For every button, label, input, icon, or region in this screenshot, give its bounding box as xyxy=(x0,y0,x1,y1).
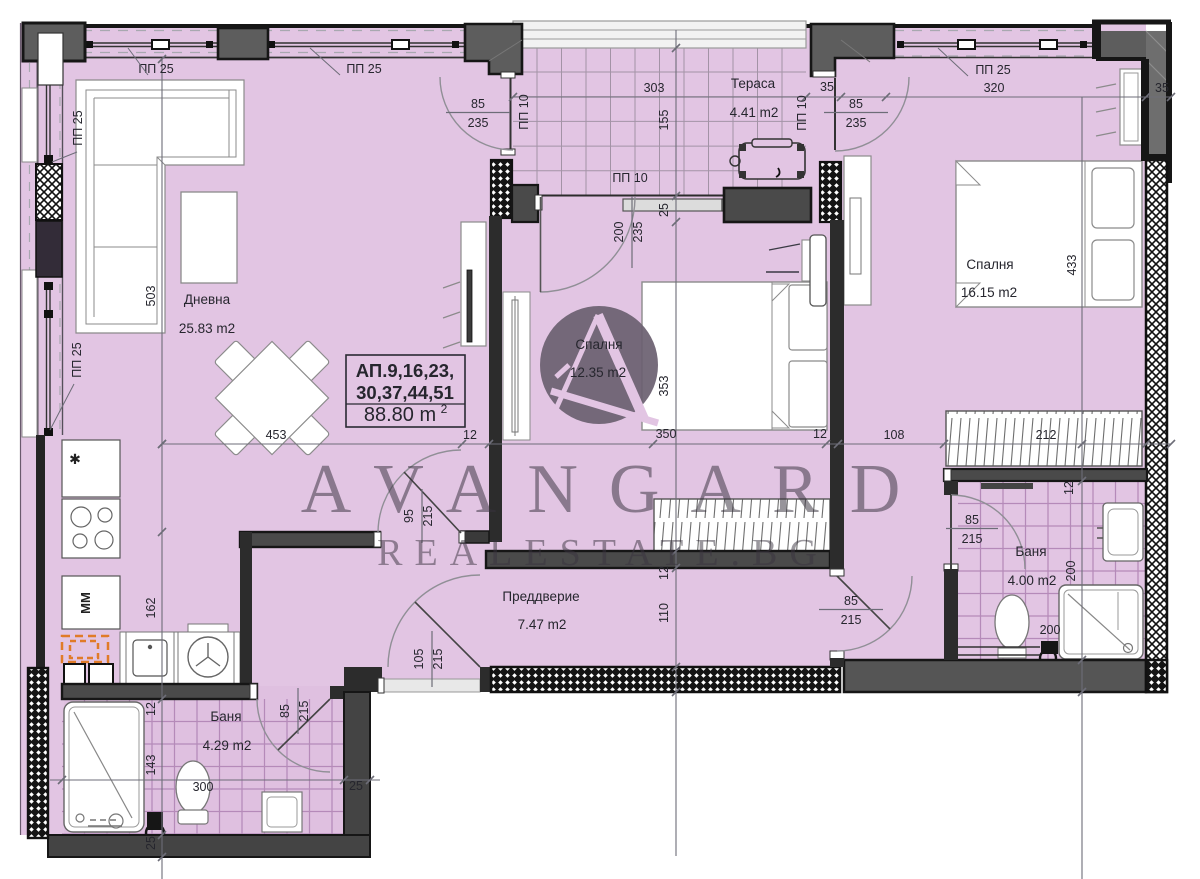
svg-text:Баня: Баня xyxy=(210,709,241,724)
svg-text:30,37,44,51: 30,37,44,51 xyxy=(356,382,454,403)
svg-text:Преддверие: Преддверие xyxy=(502,589,579,604)
svg-text:453: 453 xyxy=(266,428,287,442)
svg-text:Дневна: Дневна xyxy=(184,292,231,307)
svg-text:Спалня: Спалня xyxy=(966,257,1013,272)
svg-text:ПП 10: ПП 10 xyxy=(517,94,531,129)
svg-text:12.35 m2: 12.35 m2 xyxy=(570,365,626,380)
svg-text:ПП 25: ПП 25 xyxy=(71,110,85,145)
svg-text:12: 12 xyxy=(813,427,827,441)
svg-text:✱: ✱ xyxy=(69,451,81,467)
svg-text:303: 303 xyxy=(644,81,665,95)
svg-text:2: 2 xyxy=(441,402,448,416)
svg-text:85: 85 xyxy=(965,513,979,527)
svg-text:353: 353 xyxy=(657,376,671,397)
svg-text:85: 85 xyxy=(849,97,863,111)
svg-text:ПП 25: ПП 25 xyxy=(346,62,381,76)
svg-text:350: 350 xyxy=(656,427,677,441)
svg-text:212: 212 xyxy=(1036,428,1057,442)
svg-text:235: 235 xyxy=(846,116,867,130)
svg-text:16.15 m2: 16.15 m2 xyxy=(961,285,1017,300)
svg-text:85: 85 xyxy=(471,97,485,111)
svg-text:ММ: ММ xyxy=(78,592,93,614)
svg-text:110: 110 xyxy=(657,603,671,623)
svg-text:4.00 m2: 4.00 m2 xyxy=(1008,573,1057,588)
svg-text:162: 162 xyxy=(144,598,158,619)
svg-text:85: 85 xyxy=(844,594,858,608)
svg-text:7.47 m2: 7.47 m2 xyxy=(518,617,567,632)
svg-text:235: 235 xyxy=(631,222,645,243)
svg-text:155: 155 xyxy=(657,110,671,131)
svg-text:503: 503 xyxy=(144,286,158,307)
svg-text:433: 433 xyxy=(1065,255,1079,276)
svg-text:85: 85 xyxy=(278,704,292,718)
svg-text:25: 25 xyxy=(144,836,158,850)
svg-text:Тераса: Тераса xyxy=(731,76,776,91)
svg-text:320: 320 xyxy=(984,81,1005,95)
svg-text:200: 200 xyxy=(1040,623,1061,637)
svg-text:25: 25 xyxy=(657,203,671,217)
svg-text:35: 35 xyxy=(1155,81,1169,95)
svg-text:4.41 m2: 4.41 m2 xyxy=(730,105,779,120)
svg-text:215: 215 xyxy=(431,649,445,670)
svg-text:105: 105 xyxy=(412,649,426,670)
svg-text:25.83 m2: 25.83 m2 xyxy=(179,321,235,336)
svg-text:215: 215 xyxy=(841,613,862,627)
svg-text:ПП 10: ПП 10 xyxy=(795,95,809,130)
svg-text:88.80 m: 88.80 m xyxy=(364,404,436,426)
svg-text:4.29 m2: 4.29 m2 xyxy=(203,738,252,753)
svg-text:200: 200 xyxy=(612,222,626,243)
svg-text:300: 300 xyxy=(193,780,214,794)
svg-text:25: 25 xyxy=(349,779,363,793)
svg-text:ПП 25: ПП 25 xyxy=(975,63,1010,77)
svg-text:12: 12 xyxy=(463,428,477,442)
svg-text:Спалня: Спалня xyxy=(575,337,622,352)
svg-text:REALESTATE.BG: REALESTATE.BG xyxy=(377,532,829,574)
svg-text:215: 215 xyxy=(962,532,983,546)
svg-text:ПП 25: ПП 25 xyxy=(70,342,84,377)
svg-text:200: 200 xyxy=(1064,561,1078,582)
svg-text:12: 12 xyxy=(144,702,158,716)
svg-text:ПП 10: ПП 10 xyxy=(612,171,647,185)
svg-text:12: 12 xyxy=(1062,481,1076,495)
svg-text:Баня: Баня xyxy=(1015,544,1046,559)
svg-text:143: 143 xyxy=(144,755,158,776)
svg-text:35: 35 xyxy=(820,80,834,94)
svg-text:АП.9,16,23,: АП.9,16,23, xyxy=(356,360,454,381)
svg-text:235: 235 xyxy=(468,116,489,130)
svg-text:215: 215 xyxy=(297,701,311,722)
svg-text:AVANGARD: AVANGARD xyxy=(301,451,932,528)
svg-text:108: 108 xyxy=(884,428,905,442)
